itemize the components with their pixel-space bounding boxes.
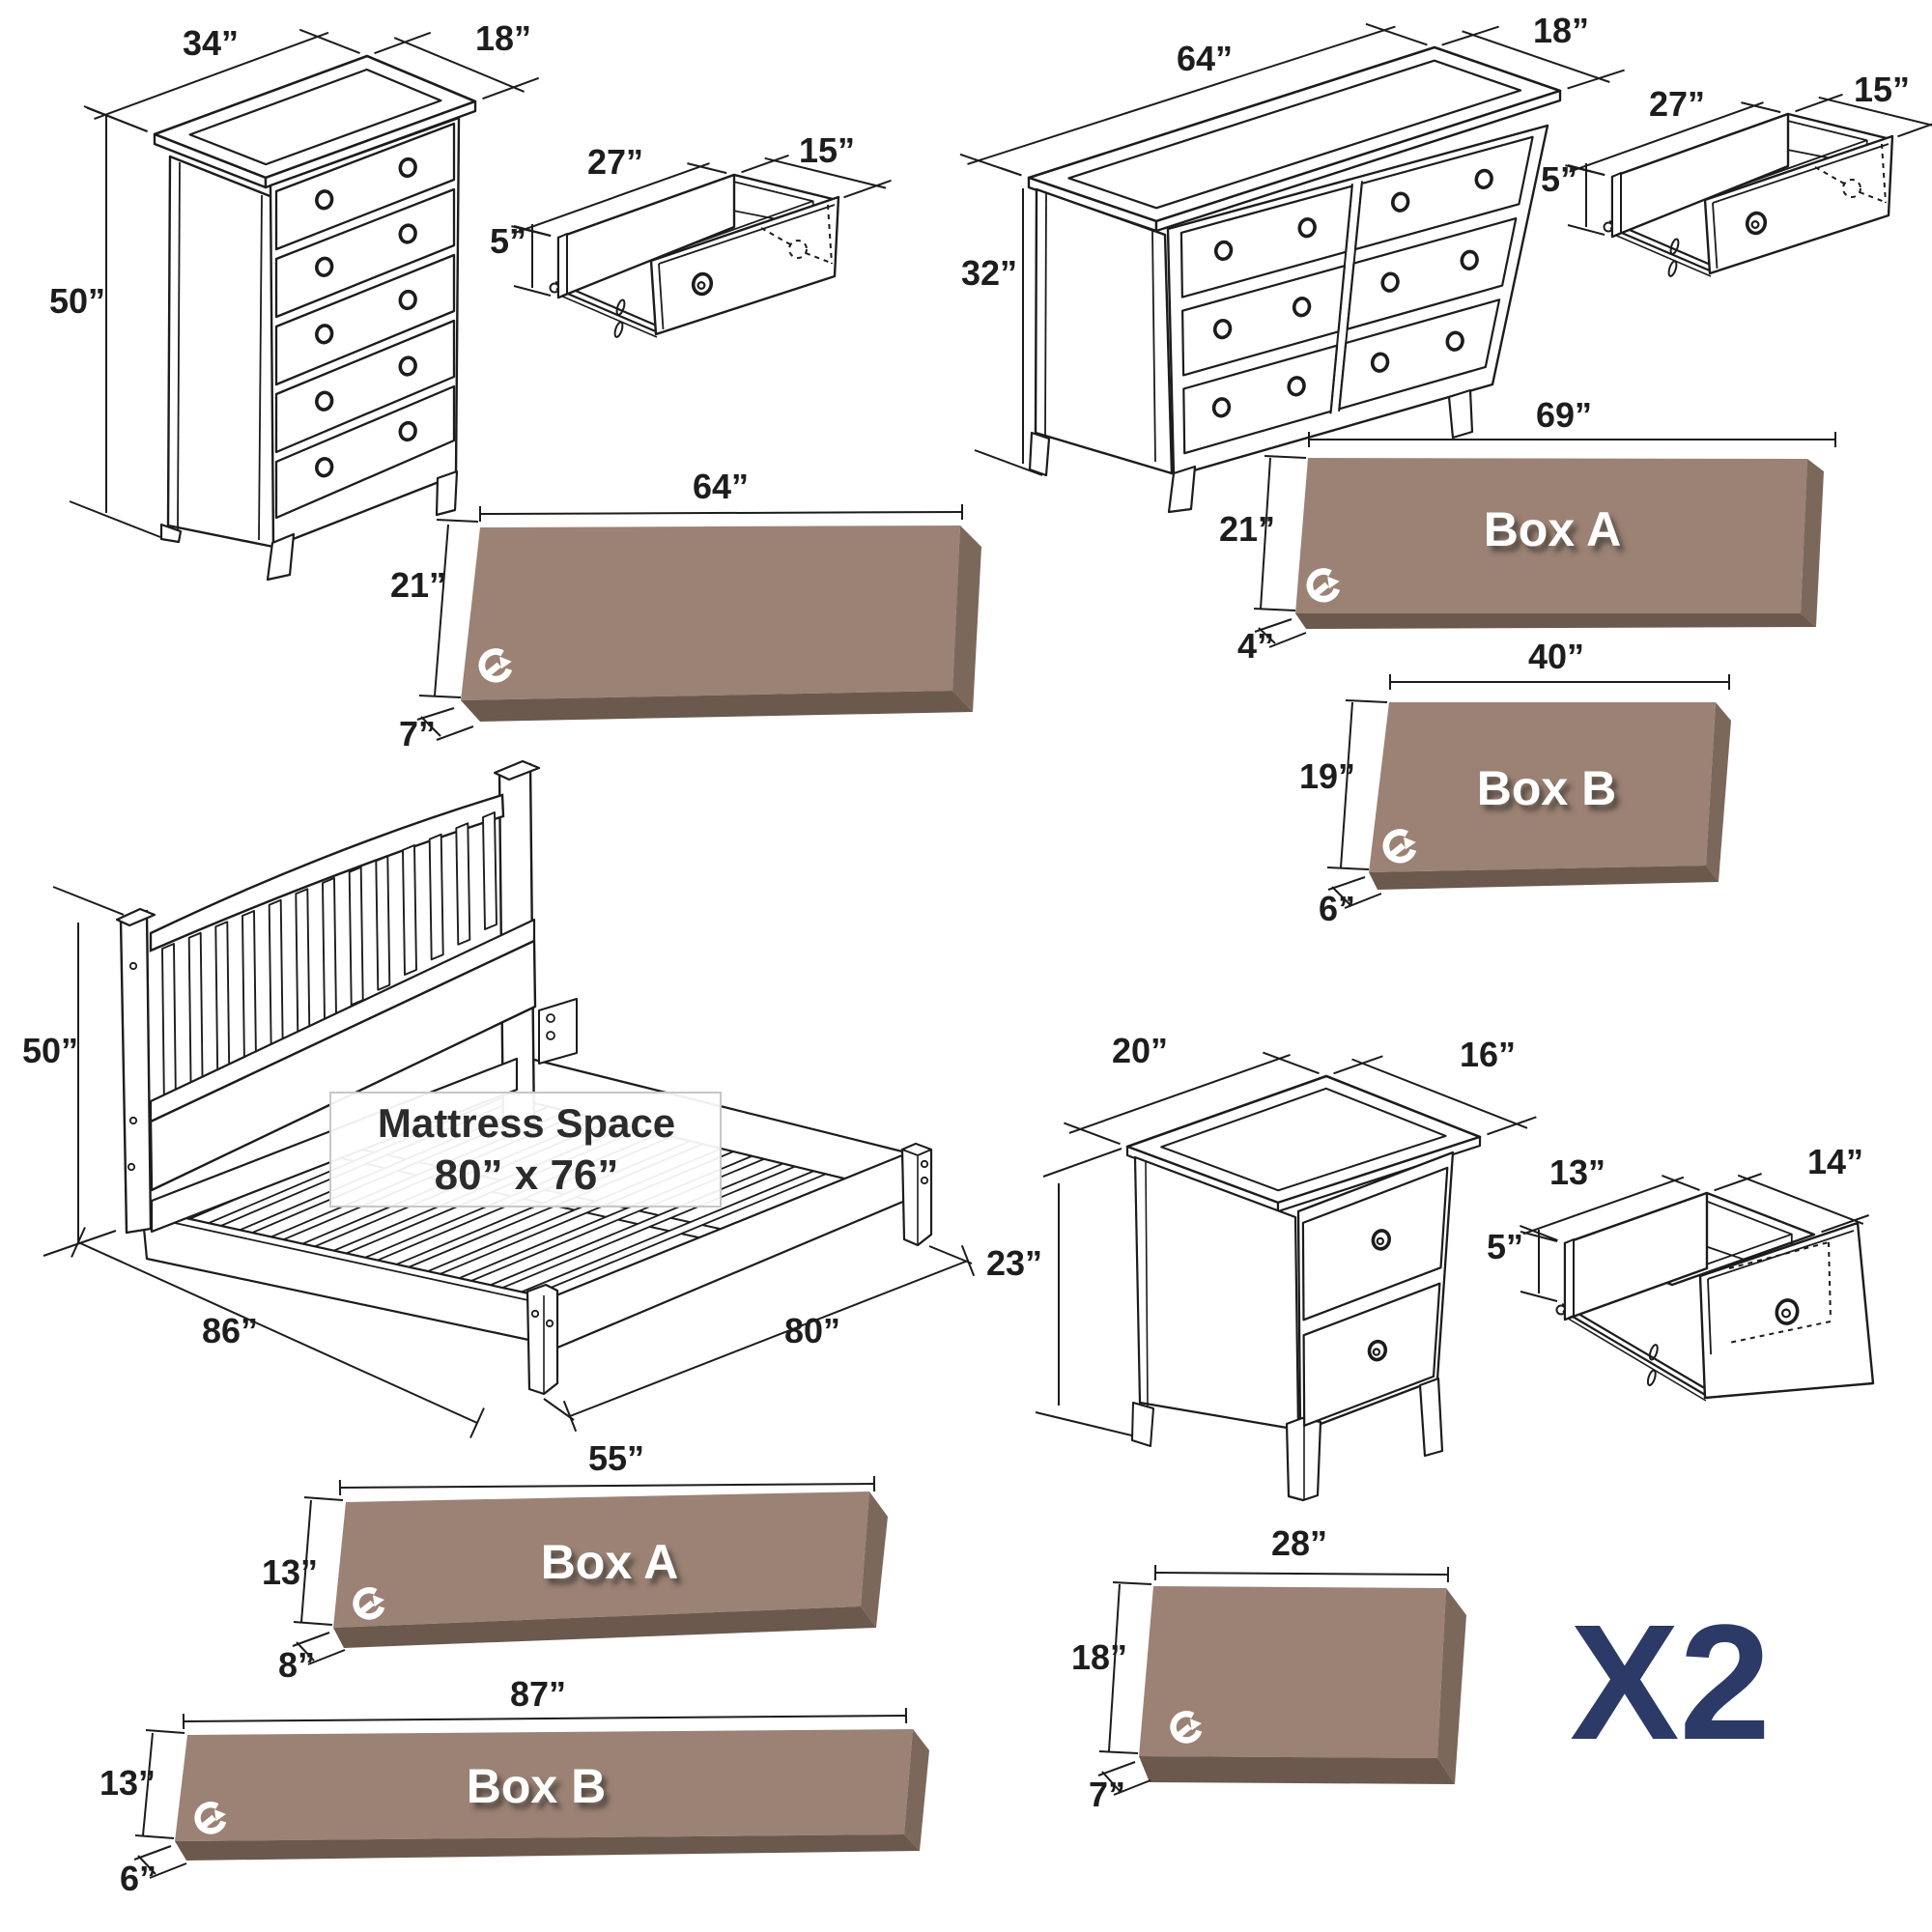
svg-text:Mattress Space: Mattress Space bbox=[378, 1100, 675, 1146]
svg-text:15”: 15” bbox=[1854, 70, 1910, 109]
svg-text:23”: 23” bbox=[986, 1243, 1042, 1283]
svg-text:6”: 6” bbox=[1319, 889, 1355, 928]
svg-text:Box B: Box B bbox=[467, 1759, 606, 1813]
svg-text:27”: 27” bbox=[587, 142, 643, 182]
svg-text:14”: 14” bbox=[1807, 1142, 1863, 1181]
svg-text:5”: 5” bbox=[490, 221, 526, 261]
svg-text:16”: 16” bbox=[1460, 1035, 1516, 1074]
svg-text:15”: 15” bbox=[799, 130, 855, 170]
svg-text:Box A: Box A bbox=[541, 1535, 679, 1589]
svg-text:64”: 64” bbox=[693, 467, 749, 506]
svg-text:50”: 50” bbox=[22, 1031, 78, 1070]
svg-text:Box A: Box A bbox=[1484, 502, 1622, 556]
svg-text:20”: 20” bbox=[1112, 1031, 1168, 1070]
svg-text:40”: 40” bbox=[1528, 637, 1584, 676]
svg-text:21”: 21” bbox=[390, 565, 446, 605]
svg-text:21”: 21” bbox=[1219, 509, 1275, 549]
svg-text:13”: 13” bbox=[99, 1763, 156, 1803]
svg-text:87”: 87” bbox=[510, 1674, 566, 1714]
svg-text:5”: 5” bbox=[1487, 1227, 1523, 1266]
svg-text:5”: 5” bbox=[1541, 159, 1577, 199]
svg-text:8”: 8” bbox=[278, 1645, 315, 1685]
svg-text:7”: 7” bbox=[399, 714, 436, 753]
svg-text:19”: 19” bbox=[1299, 756, 1355, 796]
svg-text:64”: 64” bbox=[1177, 39, 1233, 78]
svg-text:27”: 27” bbox=[1649, 84, 1705, 124]
svg-text:18”: 18” bbox=[1533, 11, 1589, 50]
svg-text:34”: 34” bbox=[183, 23, 239, 63]
svg-text:6”: 6” bbox=[120, 1859, 156, 1898]
svg-text:28”: 28” bbox=[1271, 1523, 1327, 1563]
svg-text:86”: 86” bbox=[202, 1311, 258, 1350]
svg-text:7”: 7” bbox=[1089, 1775, 1125, 1814]
svg-text:69”: 69” bbox=[1536, 395, 1592, 435]
svg-text:13”: 13” bbox=[262, 1552, 318, 1592]
svg-text:X2: X2 bbox=[1570, 1591, 1771, 1775]
svg-text:50”: 50” bbox=[49, 281, 105, 321]
svg-text:18”: 18” bbox=[1071, 1637, 1127, 1677]
svg-text:32”: 32” bbox=[961, 253, 1017, 293]
svg-text:Box B: Box B bbox=[1477, 761, 1616, 815]
svg-text:55”: 55” bbox=[588, 1438, 644, 1478]
svg-text:80”: 80” bbox=[784, 1311, 840, 1350]
svg-text:13”: 13” bbox=[1549, 1152, 1605, 1192]
svg-text:18”: 18” bbox=[475, 18, 531, 58]
svg-text:4”: 4” bbox=[1237, 626, 1274, 666]
svg-text:80” x 76”: 80” x 76” bbox=[435, 1151, 619, 1199]
